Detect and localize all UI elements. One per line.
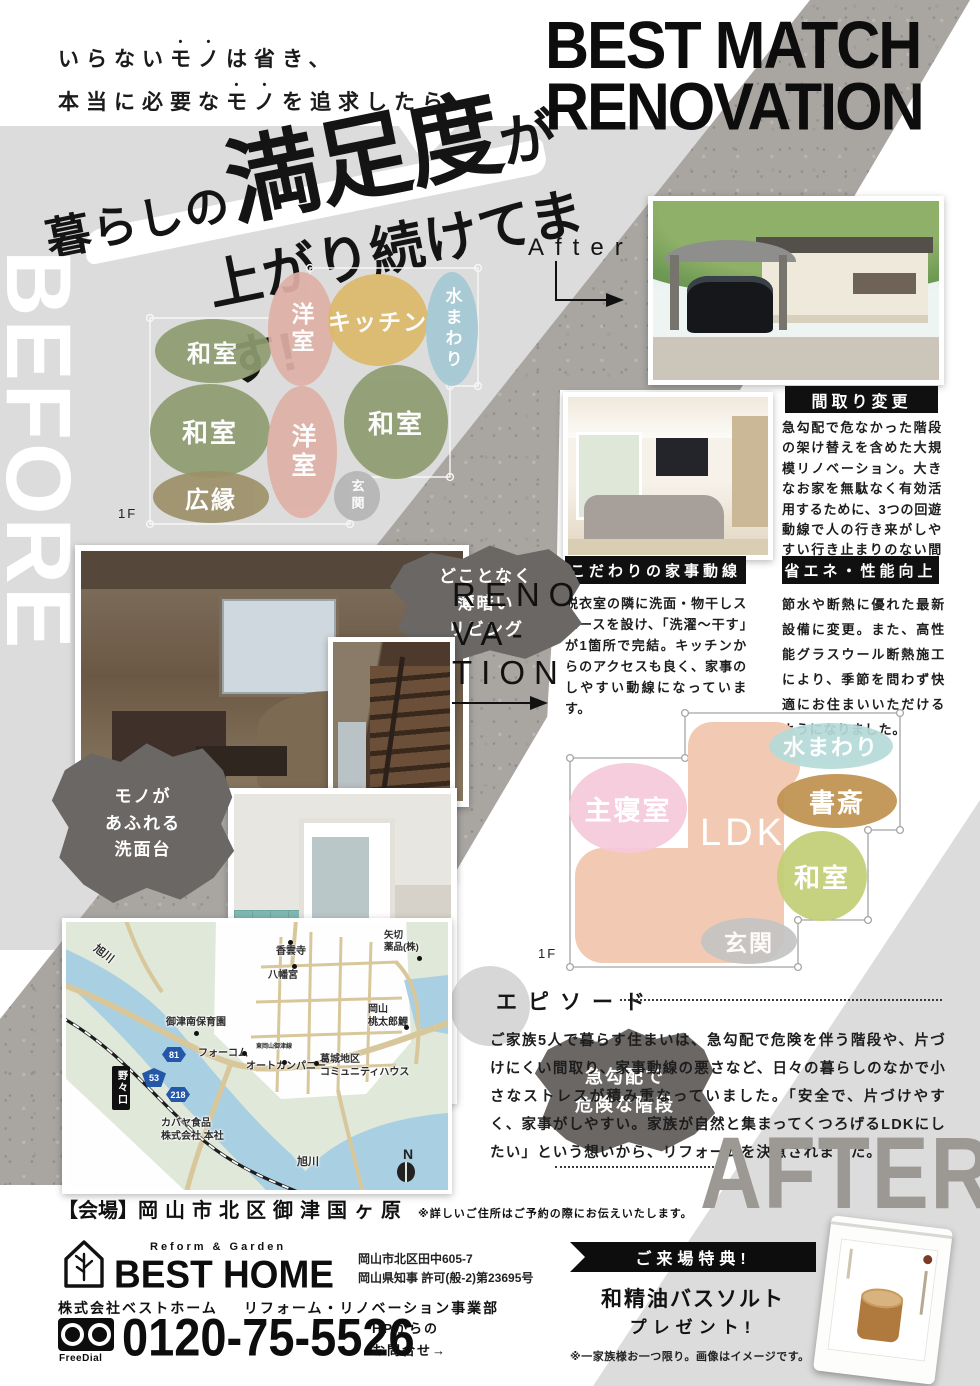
gift-item: 和精油バスソルト [568, 1283, 818, 1313]
map-label: 旭川 [90, 943, 116, 967]
after-plan-floor: 1F [538, 946, 557, 961]
venue-note: ※詳しいご住所はご予約の際にお伝えいたします。 [418, 1205, 693, 1221]
map-label: カバヤ食品 株式会社 本社 [161, 1118, 224, 1143]
plan-room: 書斎 [777, 774, 897, 828]
map-label: 御津南保育園 [166, 1017, 226, 1030]
after-big-label: AFTER [700, 1122, 980, 1224]
best-home-logo-icon [60, 1238, 108, 1290]
map-poi-dot [404, 1025, 409, 1030]
brand-tagline: Reform & Garden [150, 1241, 286, 1253]
map: 旭川香雲寺八幡宮矢切 薬品(株)御津南保育園岡山 桃太郎鯉フォーコム東岡山御津線… [62, 918, 452, 1194]
after-plan-ldk-label: LDK [700, 812, 786, 855]
map-poi-dot [194, 1031, 199, 1036]
map-poi-dot [314, 1061, 319, 1066]
freedial-icon [58, 1318, 114, 1351]
compass-n-label: N [403, 1146, 413, 1162]
plan-room: 水まわり [769, 723, 893, 769]
bathsalt-package-photo [813, 1215, 953, 1385]
venue-place: 岡山市北区御津国ヶ原 [138, 1194, 408, 1223]
hp-contact: HPからの お問合せ→ [372, 1318, 447, 1362]
map-label: 岡山 桃太郎鯉 [368, 1004, 408, 1029]
plan-room: 和室 [777, 831, 867, 921]
route-badge: 81 [162, 1047, 186, 1062]
map-label: 香雲寺 [276, 946, 306, 959]
map-poi-dot [282, 1060, 287, 1065]
map-label: フォーコム [198, 1048, 248, 1061]
plan-room: 主寝室 [569, 763, 687, 853]
map-poi-dot [288, 940, 293, 945]
episode-dotted-line [620, 999, 942, 1001]
freedial-label: FreeDial [59, 1353, 102, 1364]
episode-title: エピソード [496, 986, 656, 1016]
gift-present: プレゼント! [568, 1313, 818, 1338]
venue-bracket: 【会場】 [58, 1194, 138, 1223]
flyer-page: いらないモノは省き、 本当に必要なモノを追求したら、 BEST MATCH RE… [0, 0, 980, 1386]
map-poi-dot [292, 964, 297, 969]
gift-note: ※一家族様お一つ限り。画像はイメージです。 [570, 1348, 810, 1364]
after-dotted-line [555, 1166, 718, 1168]
map-label: 八幡宮 [268, 970, 298, 983]
brand-name: BEST HOME [114, 1253, 334, 1297]
map-poi-dot [417, 956, 422, 961]
map-label: 東岡山御津線 [256, 1044, 292, 1052]
venue-line: 【会場】 岡山市北区御津国ヶ原 ※詳しいご住所はご予約の際にお伝えいたします。 [58, 1194, 693, 1223]
map-poi-dot [242, 1051, 247, 1056]
map-label: 葛城地区 コミュニティハウス [320, 1054, 409, 1079]
route-badge: 53 [142, 1068, 166, 1087]
compass-icon [397, 1162, 415, 1182]
plan-room: 玄関 [701, 918, 797, 964]
phone-number: 0120-75-5526 [122, 1306, 415, 1368]
map-label: 矢切 薬品(株) [384, 930, 419, 954]
brand-address: 岡山市北区田中605-7 岡山県知事 許可(般-2)第23695号 [358, 1250, 533, 1287]
map-label: 旭川 [297, 1156, 319, 1170]
gift-ribbon: ご来場特典! [570, 1242, 816, 1272]
station-nonoguchi: 野々口 [112, 1066, 130, 1110]
route-badge: 218 [166, 1087, 190, 1102]
